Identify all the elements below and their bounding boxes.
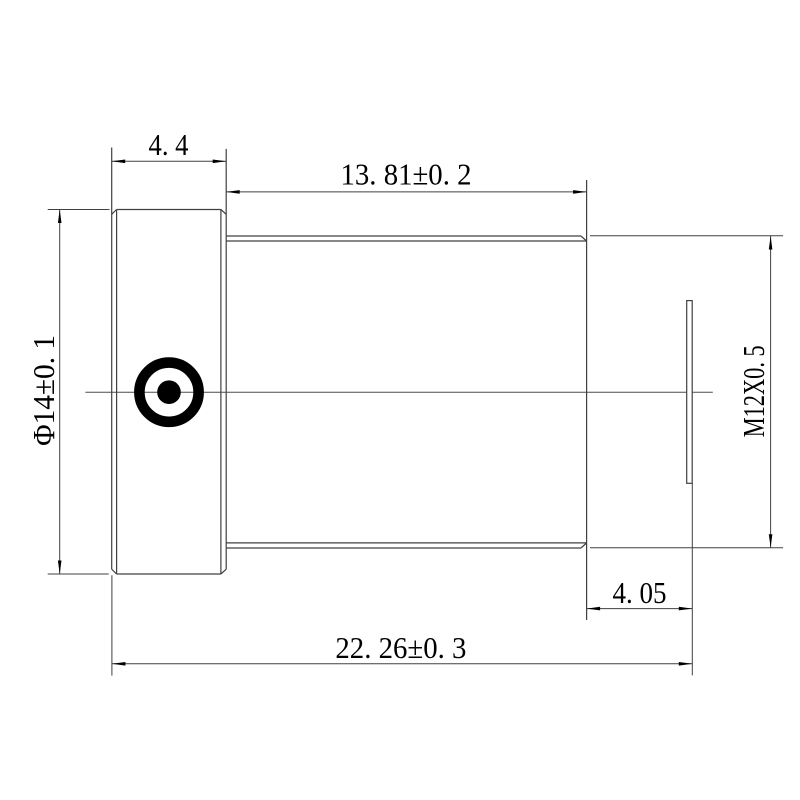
svg-text:22. 26±0. 3: 22. 26±0. 3 [335, 630, 466, 665]
svg-text:4. 4: 4. 4 [149, 127, 189, 162]
svg-text:Φ14±0. 1: Φ14±0. 1 [26, 335, 61, 446]
svg-text:M12X0. 5: M12X0. 5 [736, 345, 771, 437]
svg-text:4. 05: 4. 05 [613, 575, 667, 610]
svg-text:13. 81±0. 2: 13. 81±0. 2 [341, 157, 472, 192]
